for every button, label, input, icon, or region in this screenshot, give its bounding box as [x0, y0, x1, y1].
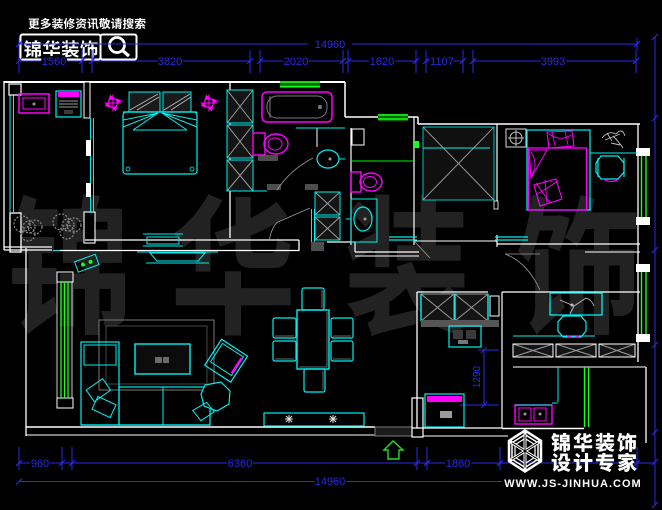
- svg-text:1290: 1290: [472, 365, 483, 388]
- svg-text:6360: 6360: [228, 458, 252, 470]
- svg-text:3993: 3993: [541, 56, 565, 68]
- svg-text:WWW.JS-JINHUA.COM: WWW.JS-JINHUA.COM: [504, 478, 641, 490]
- svg-text:14960: 14960: [315, 39, 346, 51]
- svg-text:1860: 1860: [446, 458, 470, 470]
- svg-text:14960: 14960: [315, 476, 346, 488]
- svg-text:3820: 3820: [158, 56, 182, 68]
- svg-text:1620: 1620: [370, 56, 394, 68]
- svg-text:1107: 1107: [430, 56, 454, 68]
- svg-text:1560: 1560: [42, 56, 66, 68]
- svg-text:960: 960: [31, 458, 49, 470]
- svg-text:2020: 2020: [284, 56, 308, 68]
